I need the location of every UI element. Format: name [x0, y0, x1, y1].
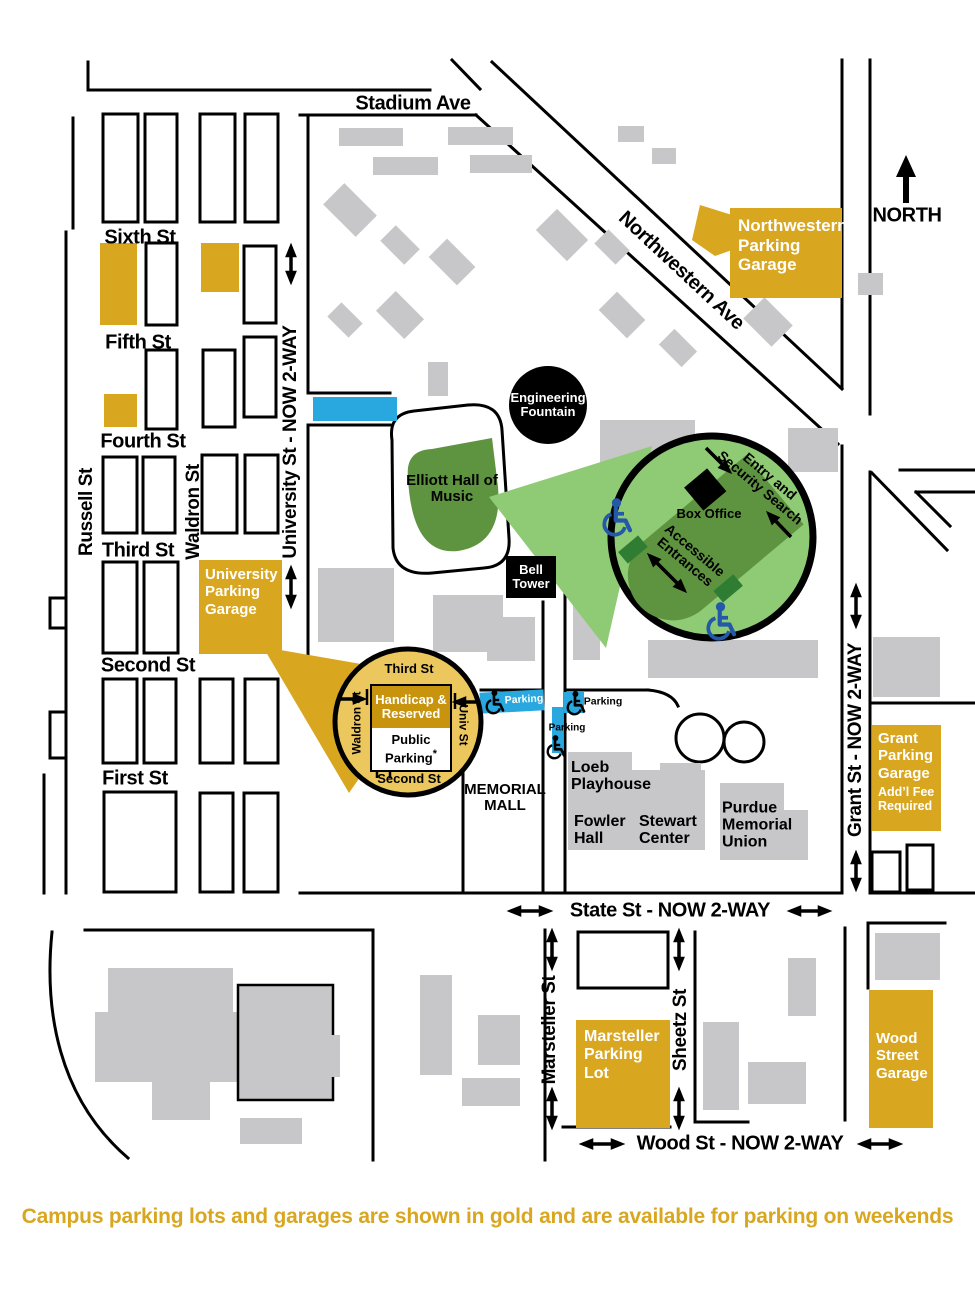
street-label-fifth-st: Fifth St [105, 332, 171, 353]
north-arrow [896, 155, 916, 203]
wood-street-garage: Wood Street Garage [869, 990, 933, 1128]
parking-strip-b-label: Parking [584, 696, 623, 707]
median-strip [313, 397, 397, 421]
memorial-mall-label: MEMORIAL MALL [456, 782, 554, 814]
parking-strip-c-label: Parking [549, 724, 586, 735]
garage-inset-box: Handicap & Reserved Public Parking* [370, 684, 452, 772]
parking-strip-a-label: Parking [504, 693, 543, 706]
street-label-fourth-st: Fourth St [100, 431, 185, 452]
street-label-sheetz-st: Sheetz St [671, 989, 691, 1071]
grant-garage-label: Grant Parking Garage [878, 730, 941, 782]
street-label-stadium-ave: Stadium Ave [355, 93, 470, 114]
street-label-grant-st: Grant St - NOW 2-WAY [846, 643, 866, 837]
street-label-wood-st: Wood St - NOW 2-WAY [637, 1133, 844, 1154]
campus-parking-map: Stadium Ave Northwestern Ave Sixth St Fi… [0, 0, 975, 1313]
street-label-first-st: First St [102, 768, 168, 789]
grant-garage-note: Add’l Fee Required [878, 785, 941, 814]
bell-tower-label: Bell Tower [506, 563, 556, 592]
public-parking-label: Public Parking* [372, 728, 450, 766]
inset-waldron-st-label: Waldron St [351, 692, 364, 755]
street-label-waldron-st: Waldron St [184, 464, 204, 560]
street-label-russell-st: Russell St [77, 468, 97, 556]
street-label-university-st: University St - NOW 2-WAY [281, 325, 301, 558]
marsteller-parking-lot: Marsteller Parking Lot [576, 1020, 670, 1128]
map-caption: Campus parking lots and garages are show… [0, 1205, 975, 1229]
handicap-reserved-band: Handicap & Reserved [372, 686, 450, 728]
elliott-hall-label: Elliott Hall of Music [405, 473, 500, 505]
bell-tower: Bell Tower [506, 556, 556, 598]
street-label-third-st: Third St [102, 540, 174, 561]
inset-second-st-label: Second St [377, 772, 441, 786]
public-parking-asterisk: * [433, 748, 437, 760]
north-label: NORTH [872, 205, 941, 226]
street-label-sixth-st: Sixth St [104, 227, 175, 248]
fowler-hall-label: Fowler Hall [574, 814, 642, 848]
street-label-second-st: Second St [101, 655, 195, 676]
stewart-center-label: Stewart Center [639, 814, 717, 848]
northwestern-garage-entrance-flag [692, 205, 732, 256]
engineering-fountain: Engineering Fountain [509, 366, 587, 444]
street-label-marsteller-st: Marsteller St [540, 976, 560, 1085]
street-label-state-st: State St - NOW 2-WAY [570, 900, 770, 921]
loeb-playhouse-label: Loeb Playhouse [571, 760, 663, 794]
university-parking-garage: University Parking Garage [199, 560, 282, 654]
grant-parking-garage: Grant Parking Garage Add’l Fee Required [872, 725, 941, 831]
purdue-memorial-union-label: Purdue Memorial Union [722, 801, 814, 852]
inset-third-st-label: Third St [384, 662, 433, 676]
inset-univ-st-label: Univ St [457, 704, 470, 745]
engineering-fountain-label: Engineering Fountain [509, 391, 587, 420]
public-parking-text: Public Parking [385, 732, 433, 765]
northwestern-parking-garage: Northwestern Parking Garage [730, 208, 842, 298]
box-office-label: Box Office [676, 507, 741, 521]
